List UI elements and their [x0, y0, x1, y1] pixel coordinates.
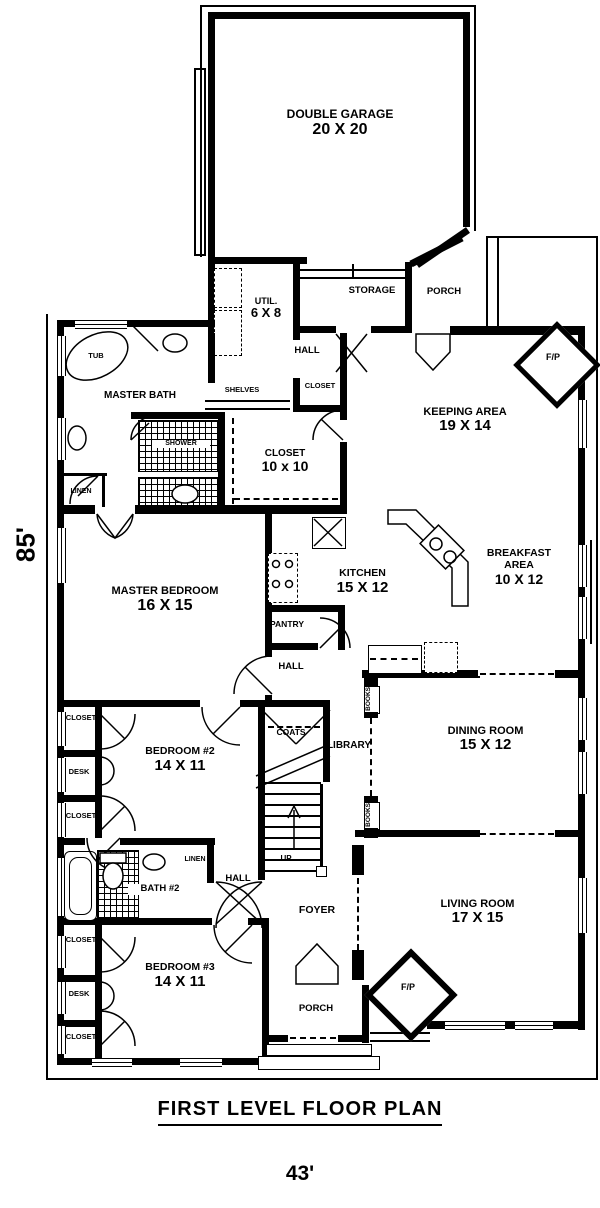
column-dash: [357, 878, 359, 950]
outline-thin: [46, 1078, 598, 1080]
garage-door: [204, 70, 206, 256]
room-label-bath2: BATH #2: [128, 884, 192, 895]
wall: [208, 333, 215, 383]
porch-column-line: [486, 238, 488, 332]
bay-diagonal: [130, 323, 158, 351]
fireplace-label-top: F/P: [530, 352, 576, 362]
window: [578, 752, 587, 794]
wall: [64, 795, 102, 802]
window: [578, 878, 587, 933]
porch-column-line: [486, 236, 499, 238]
wall: [340, 333, 347, 412]
hutch: [424, 642, 458, 673]
window: [578, 698, 587, 740]
room-label-coats: COATS: [262, 728, 320, 738]
room-label-bedroom2: BEDROOM #2 14 X 11: [110, 746, 250, 775]
wall: [131, 412, 225, 419]
wall: [208, 12, 215, 264]
room-label-linen-top: LINEN: [62, 488, 100, 496]
wall: [364, 676, 378, 686]
bookshelf: BOOKS: [364, 802, 380, 830]
room-label-living: LIVING ROOM 17 X 15: [405, 898, 550, 927]
wall: [57, 838, 85, 845]
wall: [262, 1035, 288, 1042]
linen-wall: [64, 473, 107, 476]
step-line: [370, 1040, 430, 1042]
room-label-linen-mid: LINEN: [176, 856, 214, 864]
wall: [364, 828, 378, 838]
room-label-garage: DOUBLE GARAGE 20 X 20: [250, 108, 430, 139]
wall: [340, 412, 347, 420]
window: [180, 1058, 222, 1067]
room-label-hall-bottom: HALL: [212, 874, 264, 885]
wall: [57, 700, 200, 707]
window: [578, 400, 587, 448]
toilet-room-tile: [138, 477, 222, 512]
wall: [300, 326, 336, 333]
cased-opening-dash: [370, 718, 372, 796]
closet-shelf-dash: [234, 498, 338, 500]
wall: [555, 830, 585, 837]
master-bath-double-door: [97, 514, 133, 538]
bathtub-inner: [69, 857, 92, 915]
window: [578, 597, 587, 639]
newel-post: [316, 866, 327, 877]
window: [92, 1058, 132, 1067]
closet10-door: [313, 410, 343, 440]
column: [352, 845, 364, 875]
wall: [371, 326, 412, 333]
plan-width-dimension: 43': [0, 1162, 600, 1186]
room-label-kitchen: KITCHEN 15 X 12: [310, 568, 415, 597]
porch-threshold-dash: [290, 1037, 336, 1039]
wall: [265, 605, 345, 612]
window: [75, 320, 127, 329]
window: [445, 1021, 505, 1030]
window: [57, 528, 66, 583]
wall: [57, 505, 95, 514]
room-label-foyer: FOYER: [288, 905, 346, 917]
wall: [248, 918, 262, 925]
master-bath-door-arcs: [97, 514, 133, 538]
room-label-storage: STORAGE: [338, 286, 406, 297]
porch-door: [416, 334, 450, 370]
closet-rod-dash: [232, 418, 234, 504]
room-label-porch-bottom: PORCH: [286, 1004, 346, 1015]
room-label-shower: SHOWER: [152, 440, 210, 448]
plan-title-row: FIRST LEVEL FLOOR PLAN: [0, 1098, 600, 1126]
storage-shelf: [352, 264, 354, 279]
pantry-door: [320, 618, 350, 648]
wall: [64, 975, 102, 982]
room-label-porch-top: PORCH: [414, 287, 474, 298]
outline-thin: [200, 5, 476, 7]
plan-height-dimension: 85': [11, 515, 40, 575]
burner-icon: [444, 551, 456, 563]
bay-sill: [590, 540, 592, 644]
room-label-library: LIBRARY: [318, 740, 380, 751]
room-label-breakfast: BREAKFAST AREA 10 X 12: [478, 548, 560, 587]
cased-opening-dash: [480, 673, 554, 675]
wall: [463, 12, 470, 227]
room-label-util: UTIL. 6 X 8: [238, 296, 294, 321]
room-label-dining: DINING ROOM 15 X 12: [408, 725, 563, 754]
floor-plan: BOOKS BOOKS: [0, 0, 600, 1208]
porch-chamfer-wall: [411, 238, 462, 264]
room-label-shelves: SHELVES: [202, 386, 282, 394]
wall: [293, 405, 347, 412]
garage-door: [194, 70, 196, 256]
outline-thin: [486, 236, 598, 238]
books-label: BOOKS: [365, 803, 372, 827]
room-label-hall-closet: CLOSET: [296, 382, 344, 390]
porch-step: [266, 1044, 372, 1056]
closet-door: [100, 714, 135, 749]
bedroom2-door: [202, 707, 240, 745]
wall: [64, 1020, 102, 1027]
bookshelf: BOOKS: [364, 686, 380, 714]
room-label-desk: DESK: [60, 768, 98, 776]
wall: [338, 1035, 369, 1042]
room-label-hall-top: HALL: [282, 346, 332, 357]
room-label-hall-mid: HALL: [262, 662, 320, 673]
step-line: [370, 1032, 430, 1034]
room-label-master-bedroom: MASTER BEDROOM 16 X 15: [85, 585, 245, 615]
sink-icon: [68, 426, 86, 450]
room-label-closet: CLOSET: [60, 936, 102, 944]
shelves-line: [205, 400, 290, 402]
garage-door: [194, 68, 206, 70]
wall: [405, 262, 412, 333]
wall: [340, 442, 347, 512]
refrigerator-icon: [312, 517, 346, 549]
closet-door: [100, 1011, 135, 1046]
up-label: UP: [268, 855, 304, 864]
wall: [293, 257, 300, 340]
front-door: [296, 944, 338, 984]
cased-opening-dash: [480, 833, 554, 835]
window: [515, 1021, 553, 1030]
room-label-desk: DESK: [60, 990, 98, 998]
room-label-bedroom3: BEDROOM #3 14 X 11: [110, 962, 250, 991]
counter-dash: [370, 658, 418, 660]
outline-thin: [46, 314, 48, 1080]
wall: [208, 12, 470, 19]
room-label-closet: CLOSET: [60, 714, 102, 722]
window: [578, 545, 587, 587]
room-label-closet10: CLOSET 10 x 10: [240, 448, 330, 475]
wall: [120, 838, 215, 845]
oven-icon: [268, 553, 298, 603]
room-label-closet: CLOSET: [60, 1033, 102, 1041]
garage-chamfer-wall: [417, 230, 468, 265]
window: [57, 418, 66, 460]
room-label-master-bath: MASTER BATH: [100, 390, 180, 401]
column: [352, 950, 364, 980]
linen-wall: [102, 473, 105, 507]
porch-column-line: [497, 238, 499, 332]
burner-icon: [430, 538, 442, 550]
porch-step: [258, 1056, 380, 1070]
room-label-pantry: PANTRY: [258, 620, 316, 630]
shelves-line: [205, 408, 290, 410]
outline-thin: [200, 5, 202, 257]
sink-icon: [143, 854, 165, 870]
window: [57, 336, 66, 376]
wall: [240, 700, 330, 707]
room-label-closet: CLOSET: [60, 812, 102, 820]
stove-icon: [420, 525, 464, 569]
bedroom3-door: [214, 925, 252, 963]
wall: [265, 643, 318, 650]
sink-icon: [163, 334, 187, 352]
wall: [64, 750, 102, 757]
wall: [338, 605, 345, 650]
fireplace-label-bottom: F/P: [385, 982, 431, 992]
wall: [555, 670, 585, 678]
room-label-keeping: KEEPING AREA 19 X 14: [395, 406, 535, 435]
stair-railing: [320, 784, 323, 870]
room-label-tub: TUB: [80, 352, 112, 360]
closet-door: [100, 796, 135, 831]
wall: [578, 838, 585, 1030]
plan-title: FIRST LEVEL FLOOR PLAN: [158, 1098, 443, 1126]
outline-thin: [474, 5, 476, 231]
books-label: BOOKS: [365, 687, 372, 711]
garage-door: [194, 254, 206, 256]
